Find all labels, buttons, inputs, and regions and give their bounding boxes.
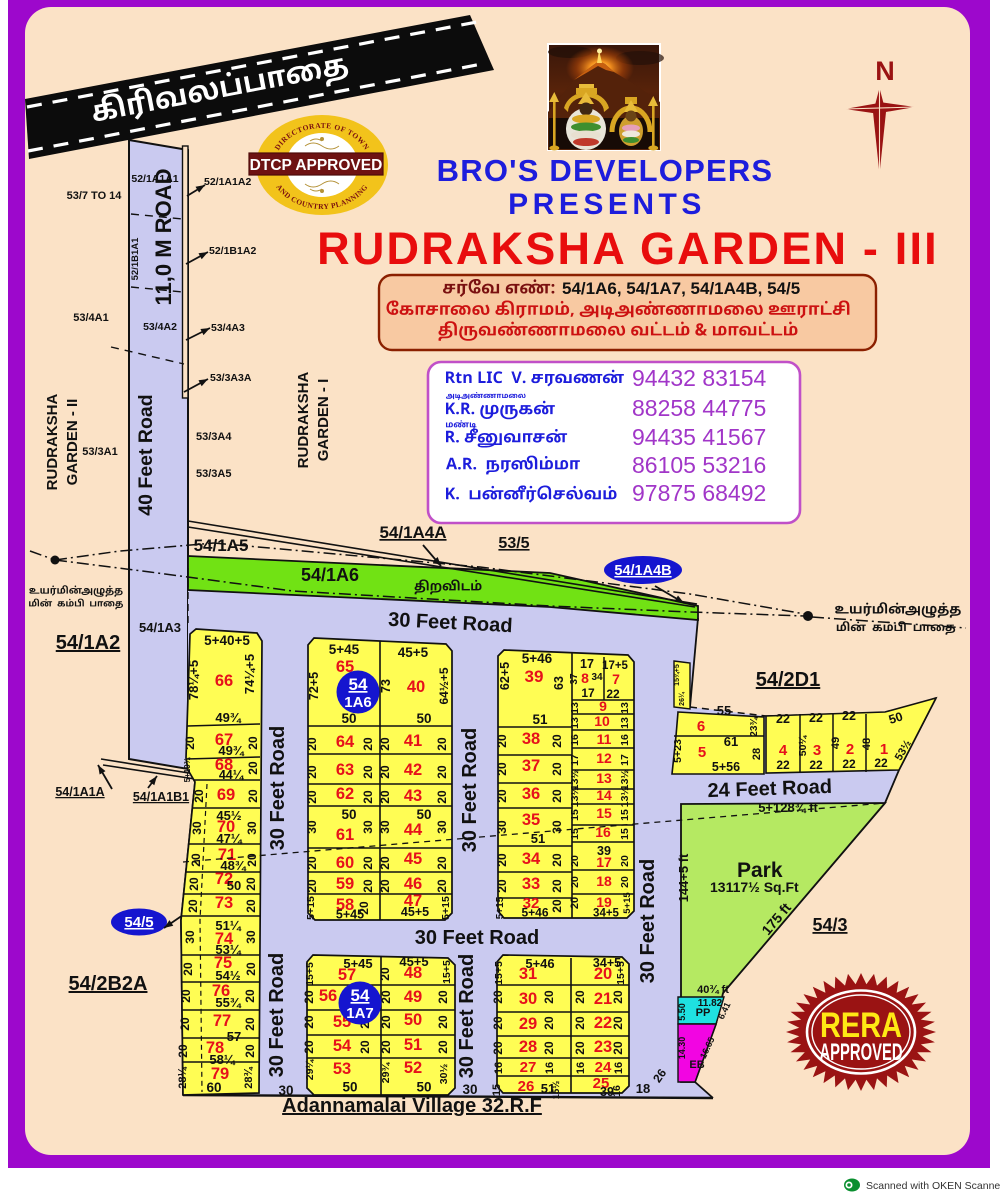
svg-text:30: 30 [244,930,258,944]
svg-text:22: 22 [842,709,856,723]
svg-text:50: 50 [416,711,431,726]
svg-text:30: 30 [378,820,392,834]
svg-text:20: 20 [495,789,509,803]
svg-text:20: 20 [550,789,564,803]
svg-text:52: 52 [404,1059,422,1077]
svg-text:55: 55 [717,703,731,718]
svg-text:39: 39 [525,667,544,686]
svg-text:20: 20 [435,856,449,870]
svg-text:29: 29 [519,1015,537,1033]
svg-text:22: 22 [809,711,823,725]
svg-text:20: 20 [491,1016,505,1030]
svg-text:73: 73 [215,894,233,912]
svg-text:28¼: 28¼ [177,1066,189,1088]
svg-text:40: 40 [407,678,425,696]
svg-text:66: 66 [215,672,233,690]
svg-text:20: 20 [436,1015,450,1029]
svg-text:20: 20 [435,790,449,804]
svg-text:34: 34 [591,672,603,683]
svg-text:94432 83154: 94432 83154 [632,365,767,391]
svg-text:20: 20 [436,1040,450,1054]
svg-text:74¼+5: 74¼+5 [242,654,257,694]
svg-text:17: 17 [569,754,581,766]
svg-text:14: 14 [596,787,612,803]
svg-text:20: 20 [379,1015,393,1029]
svg-text:37: 37 [522,757,540,775]
svg-text:54: 54 [333,1037,352,1055]
svg-text:30: 30 [519,990,537,1008]
svg-text:52/1B1A2: 52/1B1A2 [209,245,256,257]
svg-text:53/4A1: 53/4A1 [73,312,108,324]
svg-text:18: 18 [596,873,612,889]
svg-text:20: 20 [569,897,581,909]
svg-text:20: 20 [176,1044,190,1058]
svg-text:Scanned with OKEN Scanner: Scanned with OKEN Scanner [866,1180,1000,1192]
svg-text:20: 20 [378,967,392,981]
svg-text:45: 45 [404,850,422,868]
svg-text:16: 16 [544,1062,556,1074]
svg-text:53/3A3A: 53/3A3A [210,372,252,384]
svg-text:5+15: 5+15 [440,896,452,920]
svg-text:16: 16 [569,734,581,746]
svg-text:20: 20 [305,737,319,751]
svg-text:14.30: 14.30 [677,1037,687,1060]
svg-text:EB: EB [689,1059,704,1071]
svg-text:54/1A4A: 54/1A4A [379,523,446,542]
svg-text:22: 22 [776,712,790,726]
svg-text:54/1A4B: 54/1A4B [614,563,671,579]
svg-text:20: 20 [495,879,509,893]
svg-text:20: 20 [186,899,200,913]
svg-text:20: 20 [550,734,564,748]
svg-text:51: 51 [404,1036,422,1054]
svg-text:13117½ Sq.Ft: 13117½ Sq.Ft [710,879,799,895]
svg-text:27: 27 [520,1059,537,1076]
svg-text:30: 30 [462,1082,477,1097]
svg-text:20: 20 [178,1017,192,1031]
svg-text:54/2D1: 54/2D1 [756,669,821,691]
svg-text:BRO'S DEVELOPERS: BRO'S DEVELOPERS [437,153,774,188]
svg-text:2: 2 [846,741,854,758]
svg-text:20: 20 [246,761,260,775]
svg-text:56: 56 [319,987,337,1005]
svg-text:54/1A6, 54/1A7, 54/1A4B, 54/5: 54/1A6, 54/1A7, 54/1A4B, 54/5 [562,279,800,298]
svg-text:50: 50 [404,1011,422,1029]
svg-text:20: 20 [619,855,631,867]
svg-text:49: 49 [830,737,842,749]
svg-text:5+23: 5+23 [672,739,684,763]
svg-text:54: 54 [351,986,370,1005]
svg-text:15+5: 15+5 [615,961,627,985]
svg-text:RUDRAKSHA: RUDRAKSHA [44,394,61,491]
svg-text:5: 5 [698,744,706,761]
svg-text:57: 57 [227,1029,241,1044]
svg-text:20: 20 [611,1016,625,1030]
svg-text:13: 13 [619,717,631,729]
svg-text:3: 3 [813,742,821,759]
svg-text:15: 15 [596,805,612,821]
svg-text:20: 20 [243,989,257,1003]
svg-text:1A7: 1A7 [346,1005,374,1022]
svg-text:20: 20 [243,1044,257,1058]
svg-text:PP: PP [696,1007,711,1019]
svg-text:55¾: 55¾ [215,995,241,1010]
svg-text:63: 63 [552,676,566,690]
svg-text:23: 23 [594,1038,612,1056]
svg-text:13: 13 [569,717,581,729]
svg-text:20: 20 [378,856,392,870]
svg-text:20: 20 [302,1015,316,1029]
svg-text:88258 44775: 88258 44775 [632,395,766,421]
svg-text:21: 21 [594,990,612,1008]
svg-text:5+40+5: 5+40+5 [204,633,250,648]
svg-text:17: 17 [580,657,594,671]
svg-text:31: 31 [519,965,537,983]
svg-text:15: 15 [569,809,581,821]
svg-text:30: 30 [305,820,319,834]
svg-text:30: 30 [495,820,509,834]
svg-text:20: 20 [569,855,581,867]
svg-text:20: 20 [573,990,587,1004]
svg-text:53: 53 [333,1060,351,1078]
svg-text:22: 22 [594,1014,612,1032]
svg-text:APPROVED: APPROVED [820,1039,903,1066]
svg-text:22: 22 [842,757,856,771]
svg-text:30: 30 [361,820,375,834]
svg-text:29¾: 29¾ [380,1062,392,1084]
svg-text:5+45: 5+45 [329,642,360,657]
svg-text:20: 20 [305,790,319,804]
svg-text:35: 35 [522,811,540,829]
svg-text:48: 48 [404,964,422,982]
svg-text:20: 20 [302,1040,316,1054]
svg-text:34+5: 34+5 [593,908,620,920]
svg-text:51: 51 [541,1081,555,1096]
svg-text:20: 20 [358,1040,372,1054]
svg-text:13½: 13½ [619,787,631,808]
svg-text:22: 22 [809,758,823,772]
svg-text:20: 20 [305,856,319,870]
svg-text:5+15: 5+15 [305,896,317,920]
svg-text:20: 20 [305,879,319,893]
svg-text:86105 53216: 86105 53216 [632,452,766,478]
svg-text:61: 61 [724,734,738,749]
svg-text:30 Feet Road: 30 Feet Road [459,728,481,852]
svg-text:72+5: 72+5 [307,672,321,700]
svg-text:16: 16 [613,1062,625,1074]
svg-text:20: 20 [435,765,449,779]
svg-text:20: 20 [305,765,319,779]
svg-text:20: 20 [246,736,260,750]
svg-text:16: 16 [493,1062,505,1074]
svg-text:20: 20 [542,1016,556,1030]
svg-text:26¼: 26¼ [678,691,686,706]
svg-text:45+5: 45+5 [398,645,429,660]
svg-text:59: 59 [336,875,354,893]
svg-text:23¾: 23¾ [749,717,760,737]
svg-text:34: 34 [522,850,541,868]
svg-text:30: 30 [190,821,204,835]
svg-text:49¾: 49¾ [215,710,241,725]
svg-text:8: 8 [581,670,589,686]
svg-text:12: 12 [596,750,612,766]
svg-text:20: 20 [361,790,375,804]
svg-text:30 Feet Road: 30 Feet Road [415,927,539,949]
svg-text:20: 20 [243,1017,257,1031]
svg-text:20: 20 [378,765,392,779]
svg-text:49: 49 [404,988,422,1006]
svg-text:50: 50 [416,1080,431,1095]
svg-text:51: 51 [531,831,545,846]
svg-text:N: N [875,56,895,86]
svg-text:60: 60 [206,1080,221,1095]
svg-text:20: 20 [246,789,260,803]
svg-text:20: 20 [435,879,449,893]
svg-text:30 Feet Road: 30 Feet Road [266,953,288,1077]
svg-text:60: 60 [336,854,354,872]
svg-text:36: 36 [522,785,540,803]
svg-text:20: 20 [244,899,258,913]
svg-text:20: 20 [361,856,375,870]
svg-text:4: 4 [779,742,788,759]
svg-text:20: 20 [550,879,564,893]
svg-text:22: 22 [776,758,790,772]
svg-text:13: 13 [619,702,631,714]
svg-text:20: 20 [361,737,375,751]
svg-text:20: 20 [542,1041,556,1055]
svg-text:20: 20 [491,990,505,1004]
svg-text:30: 30 [245,821,259,835]
svg-text:20: 20 [187,877,201,891]
svg-text:10: 10 [594,713,610,729]
svg-text:5+15: 5+15 [495,896,506,919]
svg-text:26: 26 [518,1078,535,1095]
svg-text:20: 20 [594,965,612,983]
svg-text:6: 6 [697,718,705,735]
svg-text:54/1A5: 54/1A5 [194,536,249,555]
svg-text:54½: 54½ [215,968,240,983]
svg-text:30 Feet Road: 30 Feet Road [456,954,478,1078]
svg-text:64½+5: 64½+5 [437,667,451,704]
svg-text:62: 62 [336,785,354,803]
svg-text:54/3: 54/3 [812,915,847,935]
svg-text:30½: 30½ [438,1064,450,1085]
svg-text:15+5: 15+5 [441,960,453,984]
svg-text:54/1A3: 54/1A3 [139,620,181,635]
svg-text:52/1A1A2: 52/1A1A2 [204,176,251,188]
svg-text:5+15: 5+15 [622,892,633,914]
svg-text:20: 20 [361,879,375,893]
svg-text:30: 30 [183,930,197,944]
svg-text:53/5: 53/5 [498,535,529,552]
svg-text:5+46: 5+46 [521,906,548,920]
svg-text:20: 20 [435,737,449,751]
svg-text:77: 77 [213,1012,231,1030]
svg-text:28¾: 28¾ [243,1066,255,1088]
svg-text:54/1A6: 54/1A6 [301,565,359,585]
svg-text:15¾+5: 15¾+5 [673,664,681,686]
svg-text:Adannamalai Village 32.R.F: Adannamalai Village 32.R.F [282,1095,542,1117]
svg-text:53/3A4: 53/3A4 [196,431,232,443]
svg-text:73: 73 [379,679,393,693]
svg-text:16: 16 [575,1062,587,1074]
svg-text:20: 20 [619,876,631,888]
svg-text:62+5: 62+5 [498,662,512,690]
svg-text:53/3A1: 53/3A1 [82,446,117,458]
svg-text:43: 43 [404,787,422,805]
svg-text:38: 38 [522,730,540,748]
svg-text:18: 18 [636,1081,650,1096]
svg-text:40 Feet Road: 40 Feet Road [135,394,157,515]
svg-text:54/1A1A: 54/1A1A [55,785,104,799]
svg-text:20: 20 [611,990,625,1004]
svg-text:30: 30 [550,820,564,834]
svg-text:RUDRAKSHA: RUDRAKSHA [295,372,312,469]
svg-text:20: 20 [573,1016,587,1030]
svg-text:69: 69 [217,786,235,804]
svg-text:5.50: 5.50 [677,1003,687,1021]
svg-text:20: 20 [550,762,564,776]
svg-text:54/1A1B1: 54/1A1B1 [133,790,189,804]
svg-text:20: 20 [361,765,375,779]
svg-text:15: 15 [619,809,631,821]
svg-text:33: 33 [522,875,540,893]
svg-text:PRESENTS: PRESENTS [508,188,706,221]
svg-text:63: 63 [336,761,354,779]
svg-text:20: 20 [245,853,259,867]
svg-text:28: 28 [751,748,763,760]
svg-text:61: 61 [336,826,354,844]
svg-text:RUDRAKSHA GARDEN - III: RUDRAKSHA GARDEN - III [317,223,939,274]
svg-text:40¾ ft: 40¾ ft [697,984,729,996]
svg-text:50: 50 [341,807,356,822]
svg-text:50: 50 [341,711,356,726]
svg-text:20: 20 [244,962,258,976]
svg-text:54/5: 54/5 [124,914,153,931]
svg-text:50: 50 [342,1080,357,1095]
svg-text:41: 41 [404,732,422,750]
svg-text:78¼+5: 78¼+5 [186,660,201,700]
svg-text:44¼: 44¼ [219,768,245,782]
svg-text:5+46: 5+46 [522,651,553,666]
svg-text:97875 68492: 97875 68492 [632,480,766,506]
svg-text:51: 51 [532,712,548,727]
svg-text:15+5: 15+5 [304,962,316,986]
svg-text:20: 20 [181,962,195,976]
svg-text:DTCP APPROVED: DTCP APPROVED [250,157,383,174]
svg-text:GARDEN - II: GARDEN - II [64,399,81,486]
svg-text:54/2B2A: 54/2B2A [69,973,148,995]
svg-text:20: 20 [179,989,193,1003]
svg-text:16: 16 [611,1085,623,1097]
svg-text:20: 20 [378,737,392,751]
svg-text:30 Feet Road: 30 Feet Road [637,859,659,983]
svg-text:28: 28 [519,1038,537,1056]
svg-text:20: 20 [573,1041,587,1055]
svg-text:17: 17 [619,754,631,766]
svg-text:5+19¾: 5+19¾ [183,756,192,782]
svg-text:64: 64 [336,733,355,751]
svg-text:11,0 M ROAD: 11,0 M ROAD [151,169,176,306]
svg-text:54: 54 [349,675,368,694]
svg-text:144+5 ft: 144+5 ft [676,853,691,902]
svg-text:13: 13 [569,702,581,714]
svg-text:46: 46 [404,875,422,893]
svg-text:20: 20 [357,901,371,915]
svg-text:20: 20 [495,762,509,776]
svg-text:22: 22 [606,687,620,701]
svg-text:30 Feet Road: 30 Feet Road [267,726,289,850]
svg-text:20: 20 [183,736,197,750]
svg-text:29¼: 29¼ [304,1059,316,1081]
svg-text:24 Feet Road: 24 Feet Road [707,776,832,802]
svg-text:13½: 13½ [569,787,581,808]
svg-text:42: 42 [404,761,422,779]
svg-text:53/4A3: 53/4A3 [211,322,245,334]
svg-text:20: 20 [379,1040,393,1054]
svg-text:17: 17 [596,854,612,870]
svg-text:17: 17 [581,686,595,700]
svg-text:20: 20 [550,899,564,913]
svg-text:53/4A2: 53/4A2 [143,321,177,333]
svg-text:50: 50 [227,878,241,893]
svg-text:48: 48 [861,738,873,750]
svg-text:GARDEN - I: GARDEN - I [315,379,332,462]
svg-text:20: 20 [378,790,392,804]
svg-text:1A6: 1A6 [344,694,372,711]
svg-text:15: 15 [619,828,631,840]
svg-text:20: 20 [192,789,206,803]
svg-text:7: 7 [612,671,620,687]
svg-text:11: 11 [597,731,612,747]
svg-text:20: 20 [495,853,509,867]
svg-text:94435 41567: 94435 41567 [632,424,766,450]
svg-text:45+5: 45+5 [401,905,429,919]
svg-text:20: 20 [189,853,203,867]
svg-text:20: 20 [495,734,509,748]
svg-text:52/1B1A1: 52/1B1A1 [130,237,141,280]
svg-text:13: 13 [596,770,612,786]
svg-text:20: 20 [378,879,392,893]
svg-text:22: 22 [874,756,888,770]
svg-text:5+56: 5+56 [712,760,740,774]
svg-text:20: 20 [611,1041,625,1055]
svg-text:20: 20 [542,990,556,1004]
svg-text:53/3A5: 53/3A5 [196,468,231,480]
svg-text:47¼: 47¼ [216,831,242,846]
svg-text:37: 37 [569,673,580,685]
svg-text:15: 15 [491,1084,503,1096]
svg-text:15+5: 15+5 [493,961,505,985]
svg-text:20: 20 [244,877,258,891]
svg-text:20: 20 [302,990,316,1004]
svg-text:30: 30 [435,820,449,834]
svg-text:44: 44 [404,821,423,839]
svg-text:20: 20 [436,990,450,1004]
svg-text:24: 24 [595,1059,612,1076]
svg-text:53/7 TO 14: 53/7 TO 14 [67,190,123,202]
svg-text:20: 20 [491,1041,505,1055]
svg-text:9: 9 [599,698,607,714]
svg-text:57: 57 [338,966,356,984]
svg-text:20: 20 [569,876,581,888]
svg-text:30: 30 [278,1083,293,1098]
svg-text:16: 16 [619,734,631,746]
svg-text:54/1A2: 54/1A2 [56,632,121,654]
svg-text:50: 50 [416,807,431,822]
svg-text:50¼: 50¼ [797,735,809,757]
svg-text:20: 20 [550,853,564,867]
